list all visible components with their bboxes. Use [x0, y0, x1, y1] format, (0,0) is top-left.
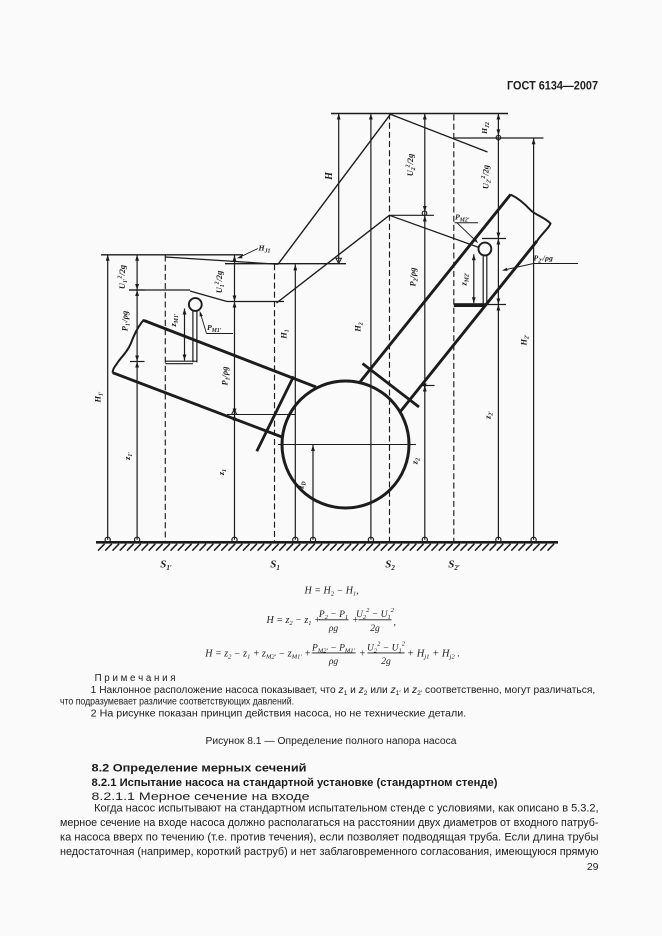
- svg-text:Рисунок 8.1 — Определение полн: Рисунок 8.1 — Определение полного напора…: [206, 736, 457, 747]
- svg-text:2 На рисунке показан принцип д: 2 На рисунке показан принцип действия на…: [91, 708, 467, 719]
- svg-text:мерное сечение на входе насоса: мерное сечение на входе насоса должно ра…: [60, 817, 599, 829]
- svg-text:недостаточная (например, корот: недостаточная (например, короткий растру…: [60, 846, 599, 858]
- svg-text:8.2 Определение мерных сечений: 8.2 Определение мерных сечений: [92, 763, 307, 775]
- svg-text:Когда насос испытывают на стан: Когда насос испытывают на стандартном ис…: [94, 802, 598, 814]
- svg-text:8.2.1 Испытание насоса на стан: 8.2.1 Испытание насоса на стандартной ус…: [92, 777, 498, 789]
- svg-text:1 Наклонное расположение насос: 1 Наклонное расположение насоса показыва…: [91, 685, 595, 697]
- svg-text:ка насоса вверх по течению (т.: ка насоса вверх по течению (т.е. против …: [60, 832, 599, 844]
- svg-text:П р и м е ч а н и я: П р и м е ч а н и я: [95, 673, 176, 684]
- svg-text:8.2.1.1 Мерное сечение на вход: 8.2.1.1 Мерное сечение на входе: [92, 791, 310, 803]
- svg-text:2g: 2g: [370, 624, 380, 634]
- svg-text:2g: 2g: [381, 657, 391, 667]
- svg-text:ρg: ρg: [328, 657, 339, 667]
- svg-text:H: H: [324, 171, 335, 181]
- svg-text:что подразумевает различие соо: что подразумевает различие соответствующ…: [60, 697, 294, 708]
- svg-text:H = z2​ − z1​ +: H = z2​ − z1​ +: [266, 615, 321, 627]
- svg-text:ρg: ρg: [328, 624, 339, 634]
- svg-text:,: ,: [394, 617, 397, 628]
- svg-text:29: 29: [587, 861, 599, 873]
- svg-text:ГОСТ 6134—2007: ГОСТ 6134—2007: [507, 81, 598, 93]
- svg-text:+: +: [359, 648, 366, 659]
